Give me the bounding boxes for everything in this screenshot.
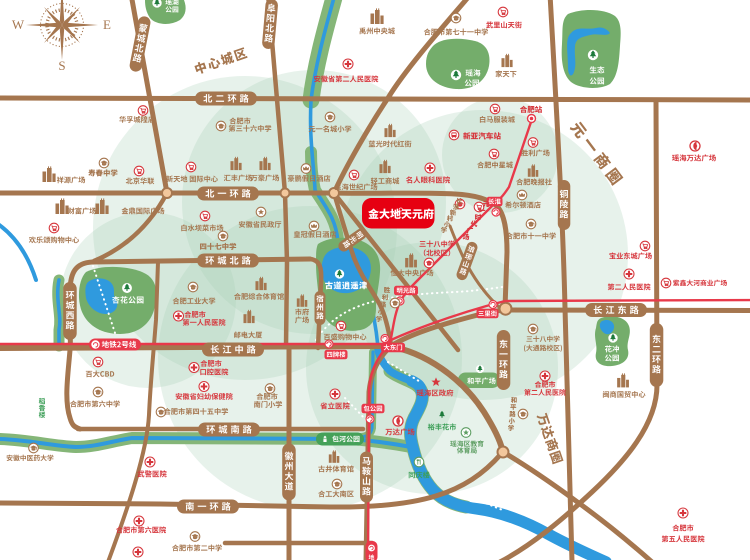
svg-text:S: S <box>58 58 65 73</box>
svg-text:W: W <box>12 17 25 32</box>
svg-text:E: E <box>103 17 111 32</box>
